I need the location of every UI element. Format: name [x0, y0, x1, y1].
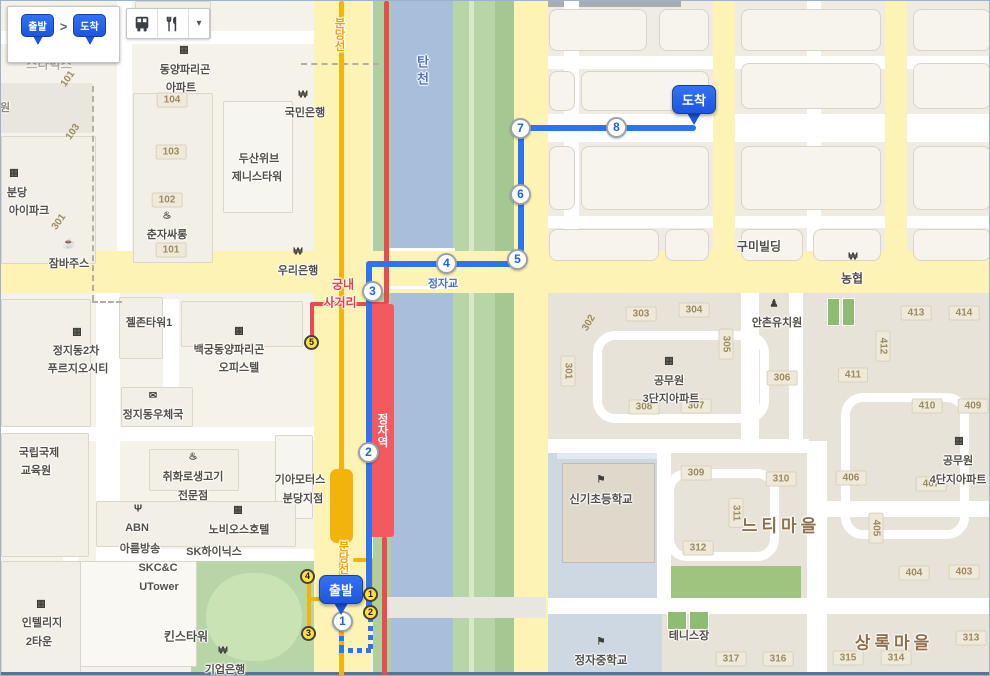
map-label: 3단지아파트 — [643, 390, 700, 406]
building — [549, 146, 575, 210]
building — [549, 9, 647, 51]
map-label: 전문점 — [178, 487, 208, 503]
start-pin[interactable]: 출발 — [319, 575, 363, 615]
cafe-icon: ☕ — [63, 239, 75, 250]
map-label: 아름방송 — [120, 540, 160, 556]
building-number-tag: 309 — [681, 466, 712, 481]
building-number-tag: 102 — [152, 193, 183, 208]
building-number-tag: 412 — [876, 331, 891, 362]
map-label: 푸르지오시티 — [48, 360, 109, 376]
end-pin[interactable]: 도착 — [672, 85, 716, 125]
map-label: UTower — [139, 581, 179, 593]
river-trail — [469, 1, 474, 676]
restaurant-icon: ♨ — [163, 211, 172, 222]
map-label: 동양파리곤 — [160, 61, 211, 77]
map-label: 분당선 — [331, 17, 347, 52]
building — [659, 9, 709, 51]
building-number-tag: 101 — [156, 243, 187, 258]
building — [913, 63, 990, 109]
map-label: 정자중학교 — [575, 652, 628, 668]
map-label: 농협 — [841, 270, 863, 287]
route-line-dashed — [339, 648, 373, 653]
restaurant-icon — [165, 16, 181, 32]
tennis-court — [842, 298, 855, 326]
major-road — [885, 1, 907, 253]
map-label: 인텔리지 — [22, 614, 62, 630]
building-number-tag: 411 — [838, 368, 868, 383]
road — [807, 441, 827, 676]
building — [1, 136, 96, 264]
map-label: 아파트 — [166, 79, 196, 95]
route-arrow: > — [60, 19, 68, 34]
apartment-icon: ▦ — [664, 356, 673, 367]
building-number-tag: 305 — [719, 329, 734, 360]
building-number-tag: 103 — [156, 145, 187, 160]
building-icon: ▦ — [72, 327, 81, 338]
building — [913, 146, 990, 210]
hotel-icon: ▦ — [233, 505, 242, 516]
railway-shinbundang-line — [310, 302, 314, 338]
school-field — [562, 463, 655, 563]
building-number-tag: 304 — [679, 303, 710, 318]
pin-tail — [687, 113, 701, 125]
building-number-tag: 410 — [912, 399, 943, 414]
map-canvas[interactable]: 1041031021011011033013013023033043053063… — [1, 1, 989, 675]
map-label: 4단지아파트 — [930, 471, 987, 487]
pin-tail — [85, 36, 95, 45]
map-label: 분당 — [7, 184, 27, 200]
building-number-tag: 303 — [626, 307, 657, 322]
building-icon: ▦ — [234, 326, 243, 337]
start-pin-label: 출발 — [21, 14, 53, 37]
jeongja-station-bundang — [330, 469, 353, 543]
building — [913, 229, 990, 261]
building-icon: ▦ — [36, 599, 45, 610]
map-label: 취화로생고기 — [163, 468, 224, 484]
end-pin-label: 도착 — [73, 14, 105, 37]
map-label: 국민은행 — [285, 104, 325, 120]
end-pin-button[interactable]: 도착 — [73, 14, 105, 45]
map-label: 춘자싸롱 — [147, 226, 187, 242]
building-number-tag: 414 — [949, 306, 980, 321]
building-number-tag: 312 — [683, 541, 714, 556]
apartment-icon: ▦ — [9, 168, 18, 179]
building-number-tag: 313 — [956, 631, 987, 646]
building — [741, 63, 881, 109]
building — [741, 9, 881, 51]
pin-tail — [33, 36, 43, 45]
route-panel: 출발 > 도착 — [7, 6, 120, 63]
subway-exit-3: 3 — [301, 626, 316, 641]
building — [71, 561, 197, 667]
road — [546, 598, 990, 614]
map-label: 아이파크 — [9, 202, 49, 218]
kindergarten-icon: ♟ — [770, 299, 779, 310]
map-label: 테니스장 — [669, 627, 709, 643]
riverbank-right-inner — [495, 1, 515, 676]
map-label: 젤존타워1 — [126, 314, 173, 330]
railway-shinbundang-line — [382, 537, 387, 676]
road — [546, 439, 809, 453]
greenbelt — [664, 566, 801, 598]
map-label: 정지동우체국 — [123, 406, 184, 422]
map-label: 정자역 — [374, 413, 390, 448]
railway-bundang-line — [339, 1, 344, 471]
map-label: 노비오스호텔 — [209, 521, 270, 537]
route-waypoint-5[interactable]: 5 — [507, 249, 528, 270]
building — [549, 229, 659, 261]
district-boundary — [92, 301, 122, 303]
map-edge-line — [1, 672, 990, 675]
map-layer-toolbar: ▾ — [126, 8, 210, 39]
map-label: 기아모터스 — [275, 471, 326, 487]
map-label: 잠바주스 — [49, 255, 89, 271]
chevron-down-icon: ▾ — [196, 18, 201, 29]
map-label: 원 — [0, 99, 10, 115]
end-pin-label: 도착 — [672, 85, 716, 114]
toolbar-dropdown-button[interactable]: ▾ — [189, 9, 209, 38]
school-icon: ⚑ — [597, 475, 606, 486]
route-line — [366, 263, 372, 619]
building-number-tag: 403 — [949, 565, 980, 580]
route-waypoint-4[interactable]: 4 — [436, 253, 457, 274]
major-road — [514, 1, 548, 676]
map-label: 국립국제 — [19, 444, 59, 460]
route-waypoint-3[interactable]: 3 — [362, 281, 383, 302]
start-pin-label: 출발 — [319, 575, 363, 604]
map-label: SKC&C — [138, 562, 177, 574]
road — [548, 216, 990, 228]
building — [913, 9, 990, 51]
map-label: 분당지점 — [283, 490, 323, 506]
map-label: 기업은행 — [205, 661, 245, 676]
bank-icon: ₩ — [848, 252, 857, 263]
restaurant-icon: ♨ — [189, 452, 198, 463]
map-label: 공무원 — [943, 452, 973, 468]
building — [813, 229, 881, 261]
route-waypoint-8[interactable]: 8 — [606, 117, 627, 138]
map-label: 안촌유치원 — [752, 314, 803, 330]
bank-icon: ₩ — [298, 90, 307, 101]
river — [391, 1, 453, 676]
map-label: 상록마을 — [855, 629, 934, 654]
apartment-icon: ▦ — [179, 45, 188, 56]
map-label: ABN — [125, 522, 149, 534]
building-number-tag: 409 — [958, 399, 989, 414]
pin-tail — [334, 603, 348, 615]
map-label: 공무원 — [654, 372, 684, 388]
map-label: 느티마을 — [742, 512, 821, 537]
map-label: 킨스타워 — [164, 628, 208, 645]
building-number-tag: 316 — [763, 652, 794, 667]
route-waypoint-6[interactable]: 6 — [510, 184, 531, 205]
building — [549, 71, 575, 111]
restaurant-layer-button[interactable] — [158, 9, 189, 38]
building-number-tag: 310 — [766, 472, 797, 487]
building-number-tag: 306 — [767, 371, 798, 386]
route-waypoint-2[interactable]: 2 — [358, 442, 379, 463]
map-label: SK하이닉스 — [186, 543, 242, 559]
apartment-icon: ▦ — [954, 436, 963, 447]
building — [581, 146, 709, 210]
post-office-icon: ✉ — [149, 391, 157, 402]
bank-icon: ₩ — [293, 247, 302, 258]
bridge-rail — [389, 248, 455, 251]
map-label: 오피스텔 — [219, 359, 259, 375]
building — [665, 229, 709, 261]
bank-icon: ₩ — [218, 646, 227, 657]
map-label: 교육원 — [21, 462, 51, 478]
subway-exit-2: 2 — [363, 605, 378, 620]
map-label: 사거리 — [323, 294, 356, 311]
bus-layer-button[interactable] — [127, 9, 158, 38]
building-number-tag: 301 — [561, 356, 576, 387]
subway-exit-4: 4 — [300, 569, 315, 584]
tennis-court — [827, 298, 840, 326]
map-label: 분당선 — [335, 540, 351, 575]
map-label: 제니스타워 — [232, 168, 283, 184]
building-number-tag: 406 — [836, 471, 867, 486]
building-number-tag: 405 — [869, 513, 884, 544]
building-number-tag: 317 — [716, 652, 747, 667]
map-label: 2타운 — [26, 633, 52, 649]
map-label: 탄천 — [413, 55, 432, 89]
bridge-deck — [384, 597, 546, 618]
building-number-tag: 404 — [899, 566, 930, 581]
map-label: 신기초등학교 — [569, 491, 632, 507]
major-road — [713, 1, 735, 253]
building-number-tag: 413 — [901, 306, 932, 321]
map-label: 구미빌딩 — [737, 238, 781, 255]
subway-exit-5: 5 — [304, 335, 319, 350]
route-waypoint-7[interactable]: 7 — [510, 118, 531, 139]
map-label: 두산위브 — [239, 150, 279, 166]
start-pin-button[interactable]: 출발 — [21, 14, 53, 45]
railway-shinbundang-line — [384, 1, 389, 304]
map-application: 1041031021011011033013013023033043053063… — [0, 0, 990, 676]
school-icon: ⚑ — [597, 637, 606, 648]
subway-exit-1: 1 — [363, 587, 378, 602]
map-label: 정자교 — [428, 275, 458, 291]
building — [741, 146, 881, 210]
map-label: 정지동2차 — [53, 342, 100, 358]
map-label: 궁내 — [332, 276, 354, 293]
map-label: 우리은행 — [278, 262, 318, 278]
broadcast-icon: Ψ — [134, 504, 142, 515]
map-label: 백궁동양파리곤 — [194, 341, 265, 357]
district-boundary — [92, 86, 94, 301]
bus-icon — [133, 15, 151, 33]
